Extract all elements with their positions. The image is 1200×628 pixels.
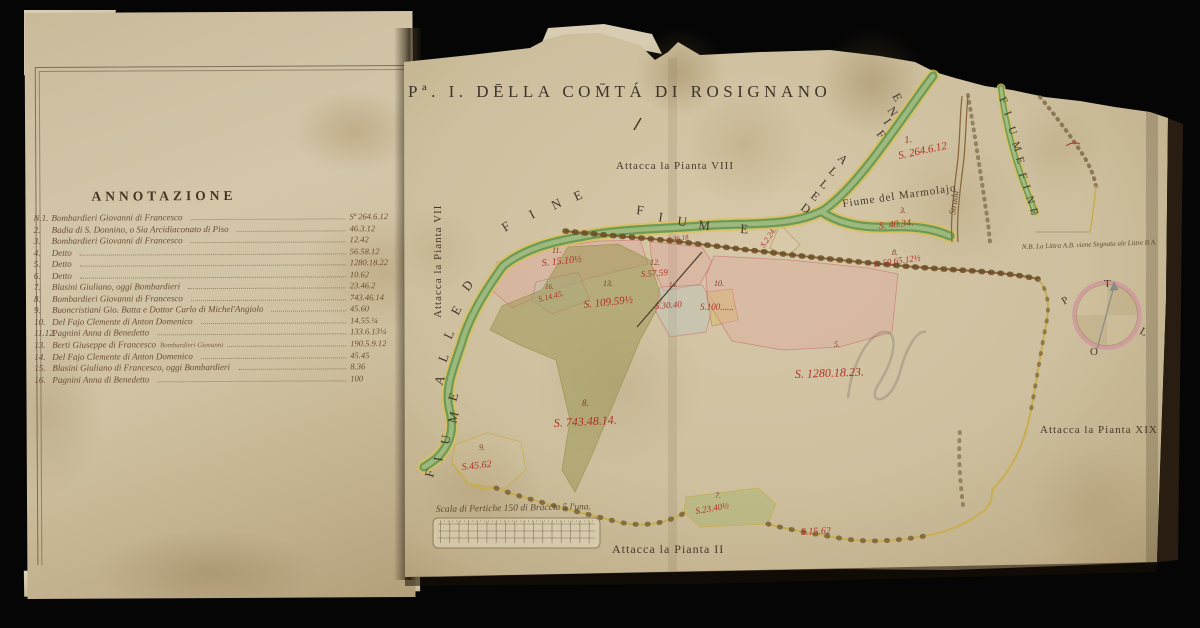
map-sheet-svg: TPLO Pª. I. DĒLLA COM̄TÁ DI ROSIGNANO At… <box>0 0 1200 628</box>
compass-point-letter: O <box>1090 346 1098 358</box>
river-name-letter: M <box>698 217 712 233</box>
parcel-area-label: S.57.59 <box>640 267 668 279</box>
map-caption: Attacca la Pianta II <box>612 542 724 556</box>
parcel-area-label: S.30.40 <box>654 299 682 311</box>
map-title: Pª. I. DĒLLA COM̄TÁ DI ROSIGNANO <box>408 82 831 101</box>
parcel-number: 7. <box>715 491 721 500</box>
parcel-number: 3. <box>899 206 906 215</box>
parcel-number: 9. <box>479 443 485 452</box>
map-caption: Attacca la Pianta VIII <box>616 160 734 172</box>
parcel-area-label: S.15.62 <box>801 525 832 538</box>
river-name-letter: E <box>740 221 749 237</box>
parcel-area-label: S.100...... <box>700 302 734 312</box>
parcel-area-label: S. 1280.18.23. <box>795 365 864 381</box>
parcel-number: 13. <box>603 279 613 288</box>
parcel-number: 16. <box>545 283 554 291</box>
parcel-number: 11. <box>552 246 561 255</box>
parcel-number: 8. <box>582 398 589 408</box>
parcel-number: 10. <box>714 279 724 288</box>
compass-point-letter: T <box>1104 278 1111 290</box>
parcel-10 <box>706 256 898 350</box>
scale-bar <box>433 518 600 548</box>
parcel-number: 12. <box>650 258 660 267</box>
map-caption: Attacca la Pianta VII <box>432 205 444 318</box>
parcel-number: 5. <box>834 340 840 349</box>
scanned-map-photo: ANNOTAZIONE N.1. Bombardieri Giovanni di… <box>0 0 1200 628</box>
parcel-number: 14. <box>669 281 678 289</box>
map-caption: Attacca la Pianta XIX <box>1040 424 1158 436</box>
